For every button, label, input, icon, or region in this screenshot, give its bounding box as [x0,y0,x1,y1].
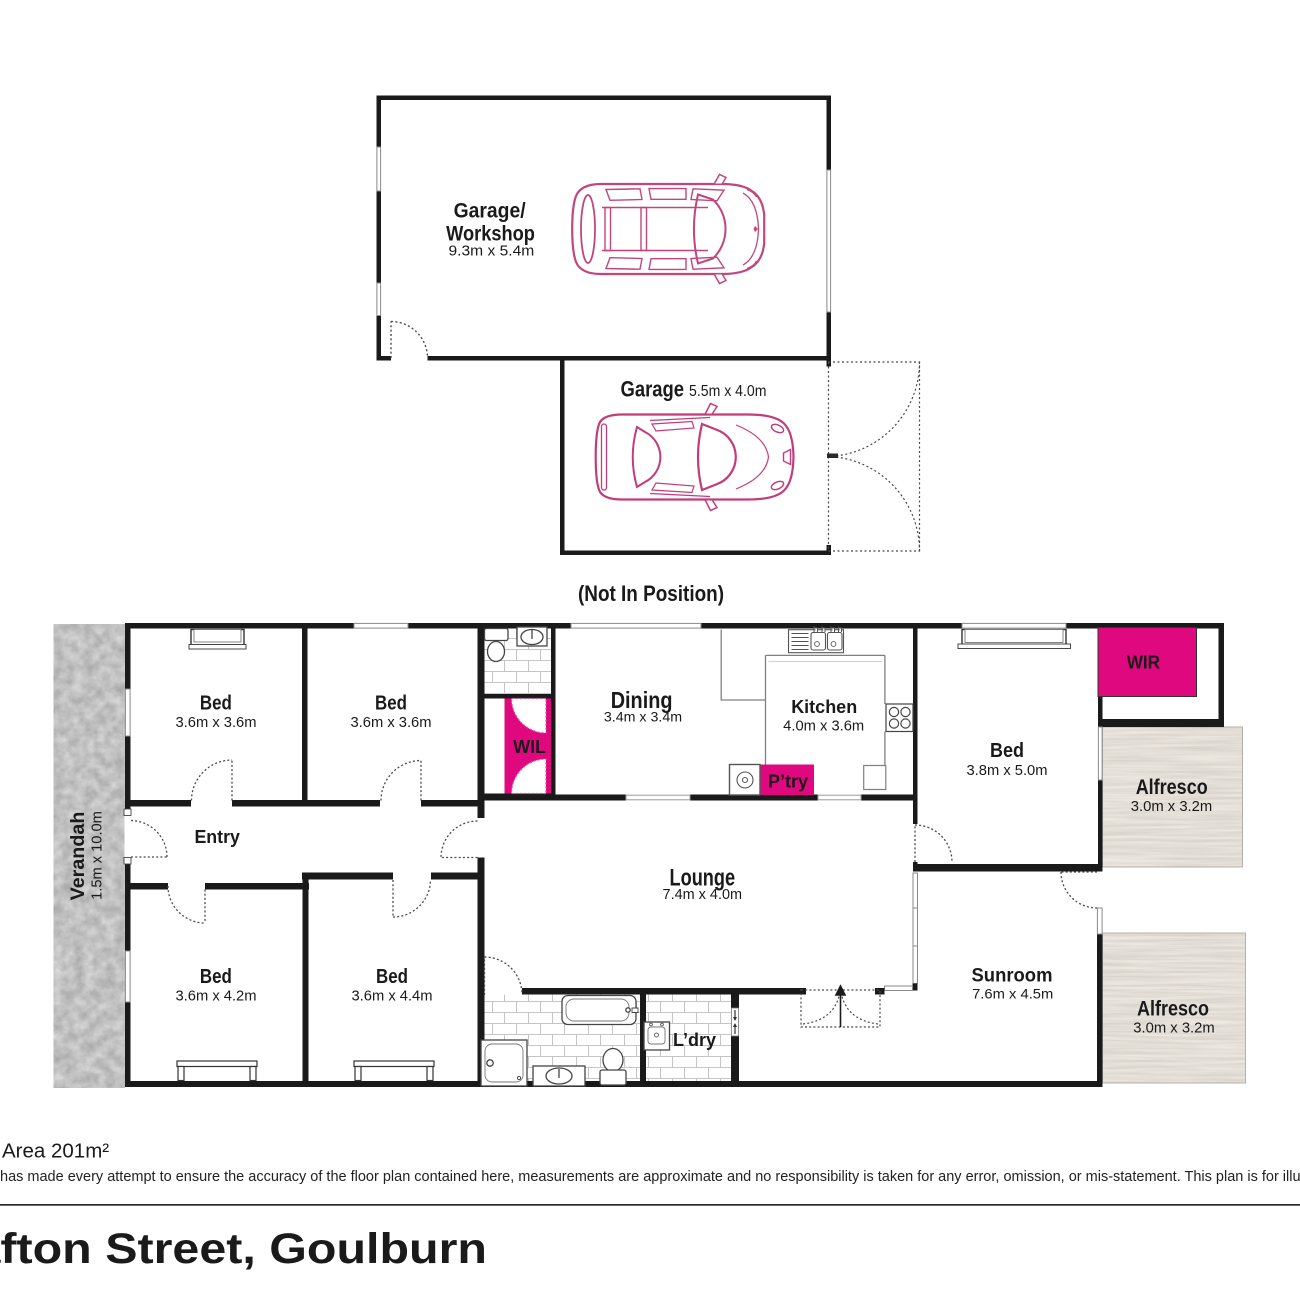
svg-text:Bed: Bed [375,693,407,715]
svg-text:P’try: P’try [768,772,808,792]
svg-text:3.6m x 3.6m: 3.6m x 3.6m [351,715,432,731]
svg-text:WIR: WIR [1127,653,1160,673]
svg-text:9.3m x 5.4m: 9.3m x 5.4m [449,243,535,259]
svg-text:Grafton Street, Goulburn: Grafton Street, Goulburn [0,1225,487,1273]
svg-text:Alfresco: Alfresco [1136,776,1208,799]
svg-text:Garage/: Garage/ [454,199,526,223]
svg-text:3.6m x 3.6m: 3.6m x 3.6m [176,715,257,731]
svg-text:3.8m x 5.0m: 3.8m x 5.0m [967,763,1048,779]
svg-text:Area 201m²: Area 201m² [2,1140,109,1163]
svg-text:Workshop: Workshop [446,221,535,245]
svg-text:Bed: Bed [990,739,1024,762]
svg-text:WIL: WIL [513,737,546,757]
svg-text:has made every attempt to ensu: has made every attempt to ensure the acc… [0,1169,1300,1185]
svg-text:Alfresco: Alfresco [1137,998,1209,1021]
svg-text:Entry: Entry [194,827,240,847]
svg-text:7.4m x 4.0m: 7.4m x 4.0m [663,887,743,903]
svg-text:Bed: Bed [376,966,408,988]
svg-text:3.4m x 3.4m: 3.4m x 3.4m [604,708,682,724]
svg-text:Kitchen: Kitchen [791,696,857,717]
svg-text:3.6m x 4.4m: 3.6m x 4.4m [352,988,433,1004]
svg-text:7.6m x 4.5m: 7.6m x 4.5m [972,985,1053,1001]
svg-text:5.5m x 4.0m: 5.5m x 4.0m [689,383,767,400]
svg-text:Garage: Garage [621,377,685,402]
svg-text:Sunroom: Sunroom [972,965,1053,986]
svg-text:3.0m x 3.2m: 3.0m x 3.2m [1131,799,1213,815]
svg-text:4.0m x 3.6m: 4.0m x 3.6m [783,719,864,735]
svg-text:L’dry: L’dry [673,1030,716,1050]
svg-text:(Not In Position): (Not In Position) [578,581,724,606]
svg-text:1.5m x 10.0m: 1.5m x 10.0m [90,811,106,900]
svg-text:Bed: Bed [200,966,232,988]
svg-text:3.0m x 3.2m: 3.0m x 3.2m [1133,1020,1215,1036]
svg-text:3.6m x 4.2m: 3.6m x 4.2m [176,988,257,1004]
svg-text:Bed: Bed [200,693,232,715]
svg-text:Verandah: Verandah [68,812,89,901]
